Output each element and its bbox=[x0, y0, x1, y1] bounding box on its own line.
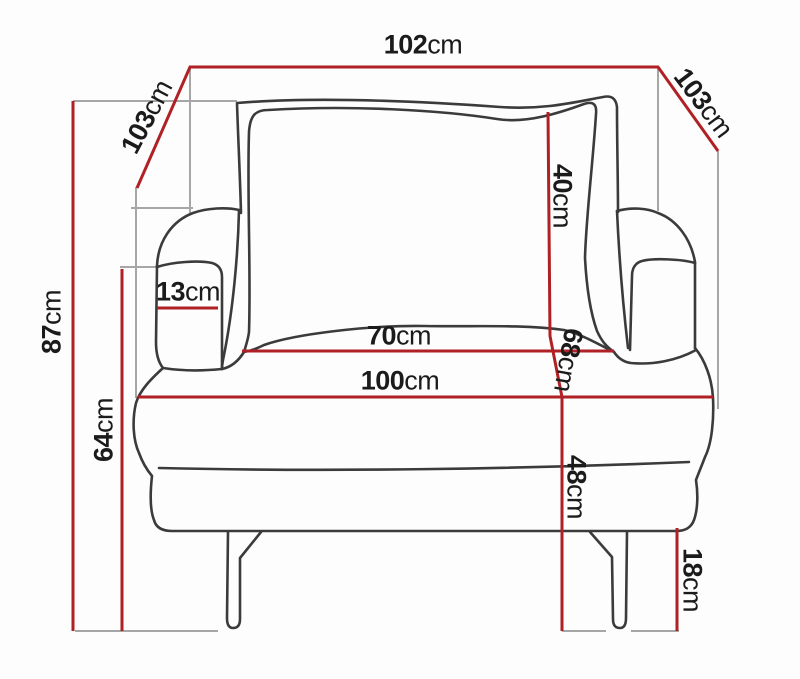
dimension-label-base-width: 100cm bbox=[361, 368, 440, 395]
dimension-value: 18 bbox=[678, 548, 708, 577]
dimension-value: 87 bbox=[37, 325, 67, 354]
dimension-label-leg-height: 18cm bbox=[679, 548, 706, 612]
dimension-unit: cm bbox=[548, 355, 584, 395]
dimension-value: 40 bbox=[548, 164, 578, 193]
dimension-label-armrest-width: 13cm bbox=[156, 279, 220, 306]
seat-top-left-edge bbox=[163, 352, 244, 370]
dimension-label-seat-width: 70cm bbox=[367, 323, 431, 350]
dimension-unit: cm bbox=[396, 321, 431, 351]
dimension-unit: cm bbox=[37, 290, 67, 325]
dimension-label-top-width: 102cm bbox=[384, 32, 463, 59]
right-armrest-inner bbox=[617, 211, 628, 348]
right-leg bbox=[590, 532, 627, 628]
left-armrest-outer-top bbox=[157, 208, 239, 266]
left-leg bbox=[227, 532, 261, 628]
right-armrest-top-outer bbox=[617, 209, 695, 348]
dimension-label-armrest-height: 64cm bbox=[91, 398, 118, 462]
armchair-dimension-diagram: 102cm 103cm 103cm 87cm 64cm 13cm 70cm 10… bbox=[0, 0, 800, 679]
dimension-unit: cm bbox=[185, 277, 220, 307]
dimension-label-seat-height: 48cm bbox=[563, 455, 590, 519]
dimension-value: 100 bbox=[361, 366, 405, 396]
dimension-value: 13 bbox=[156, 277, 185, 307]
dimension-unit: cm bbox=[548, 193, 578, 228]
dimension-label-total-height: 87cm bbox=[39, 290, 66, 354]
dimension-value: 70 bbox=[367, 321, 396, 351]
seat-base-crease bbox=[159, 462, 689, 470]
dimension-line-102-103-103 bbox=[137, 67, 718, 188]
armchair-outline bbox=[134, 96, 714, 628]
dimension-value: 102 bbox=[384, 30, 428, 60]
dimension-unit: cm bbox=[427, 30, 462, 60]
left-armrest-inner bbox=[222, 210, 239, 369]
dimension-unit: cm bbox=[562, 484, 592, 519]
dimension-value: 48 bbox=[562, 455, 592, 484]
dimension-label-back-cushion-height: 40cm bbox=[549, 164, 576, 228]
dimension-unit: cm bbox=[678, 577, 708, 612]
dimension-value: 64 bbox=[89, 433, 119, 462]
right-armrest-front bbox=[630, 259, 695, 350]
dimension-unit: cm bbox=[404, 366, 439, 396]
dimension-unit: cm bbox=[89, 398, 119, 433]
seat-top-right-edge bbox=[614, 350, 696, 363]
